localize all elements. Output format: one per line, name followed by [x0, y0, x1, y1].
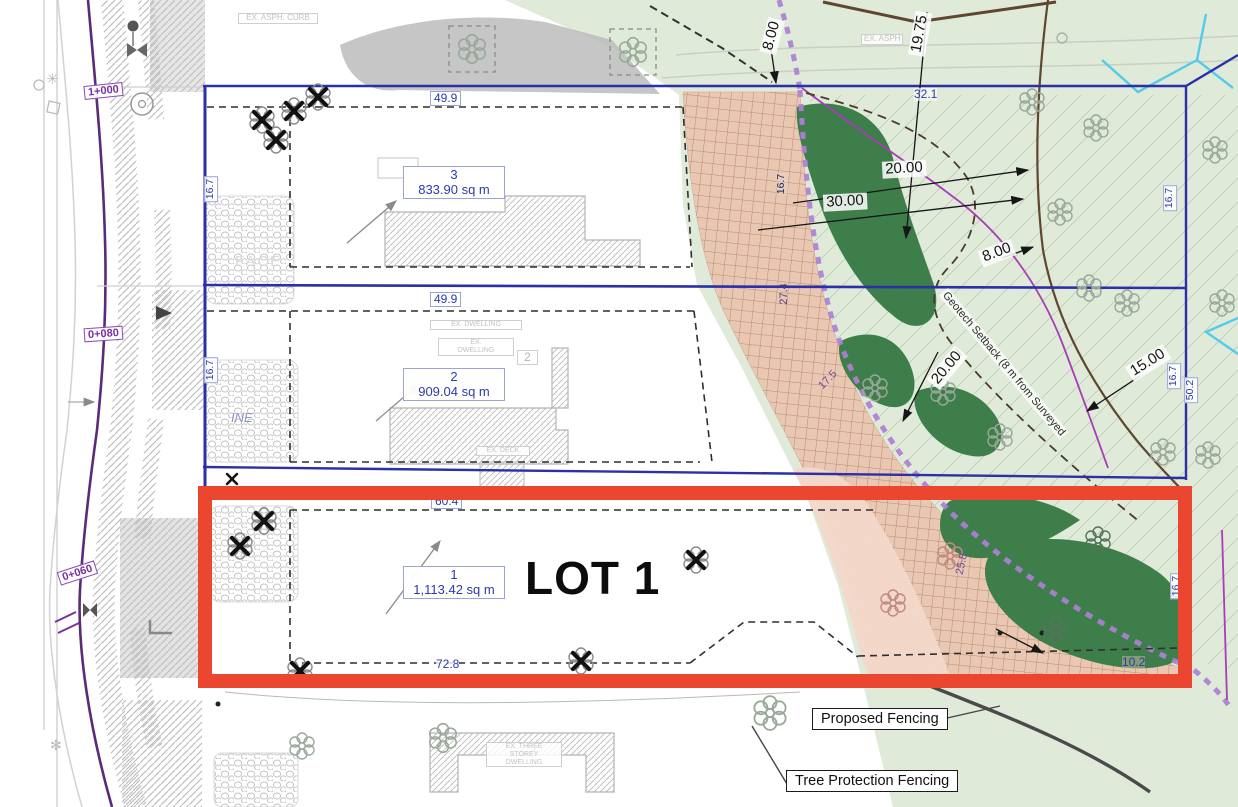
svg-text:✻: ✻	[50, 738, 62, 754]
dim-27-4: 27.4	[778, 283, 790, 304]
lot1-title: LOT 1	[525, 553, 660, 605]
dim-16-7-left-lot2: 16.7	[204, 357, 218, 383]
building-2-tag: 2	[517, 350, 538, 365]
ex-three-storey-note: EX. THREE STOREY DWELLING	[486, 742, 562, 767]
storey-line3: DWELLING	[489, 759, 559, 767]
dim-16-7-left-lot3: 16.7	[204, 176, 218, 202]
storey-line1: EX. THREE	[489, 743, 559, 751]
dim-16-7-hatch: 16.7	[776, 173, 788, 195]
svg-text:✳: ✳	[46, 70, 59, 88]
lot2-number: 2	[410, 370, 498, 385]
dim-lot3-frontage: 49.9	[430, 91, 461, 106]
ex-deck-note: EX. DECK	[476, 446, 530, 456]
ex-asph-note: EX. ASPH	[861, 34, 903, 45]
storey-line2: STOREY	[489, 751, 559, 759]
plan-linework: ✳ ✻	[0, 0, 1238, 807]
ex-dwelling-note-1: EX. DWELLING	[430, 320, 522, 330]
face-text: FACE	[235, 254, 282, 271]
dim-10-2: 10.2	[1122, 656, 1145, 669]
site-plan-canvas: ✳ ✻	[0, 0, 1238, 807]
lot3-number: 3	[410, 168, 498, 183]
ex-asph-curb-note: EX. ASPH. CURB	[238, 13, 318, 24]
lot2-label: 2 909.04 sq m	[403, 368, 505, 401]
dim-20-00-upper: 20.00	[882, 159, 926, 178]
existing-buildings	[378, 158, 640, 792]
lot1-label: 1 1,113.42 sq m	[403, 566, 505, 599]
lot3-area: 833.90 sq m	[410, 183, 498, 198]
dim-lot2-frontage: 49.9	[430, 292, 461, 307]
legend-proposed-fencing: Proposed Fencing	[812, 708, 948, 730]
dim-lot1-frontage: 60.4	[431, 494, 462, 509]
ex-dwelling-line1: EX.	[441, 339, 511, 347]
lot2-area: 909.04 sq m	[410, 385, 498, 400]
rock-texture-areas	[206, 196, 298, 807]
dim-32-1: 32.1	[914, 88, 937, 101]
dim-16-7-lot1-right: 16.7	[1170, 573, 1184, 599]
dim-lot1-rear: 72.8	[436, 658, 459, 671]
ex-dwelling-note-2: EX. DWELLING	[438, 338, 514, 356]
lot1-area: 1,113.42 sq m	[410, 583, 498, 598]
dim-16-7-right-mid: 16.7	[1167, 363, 1181, 389]
dim-30-00: 30.00	[823, 192, 867, 211]
dim-50-2-right: 50.2	[1184, 377, 1198, 403]
road-corridor	[44, 0, 205, 807]
legend-tree-protection-fencing: Tree Protection Fencing	[786, 770, 958, 792]
ine-text: INE	[231, 411, 253, 426]
ex-dwelling-line2: DWELLING	[441, 347, 511, 355]
lot1-number: 1	[410, 568, 498, 583]
ex-pvc-note: EX. 450 PVC	[512, 30, 559, 39]
lot3-label: 3 833.90 sq m	[403, 166, 505, 199]
station-label-0080: 0+080	[84, 326, 124, 343]
dim-16-7-right-top: 16.7	[1163, 185, 1177, 211]
